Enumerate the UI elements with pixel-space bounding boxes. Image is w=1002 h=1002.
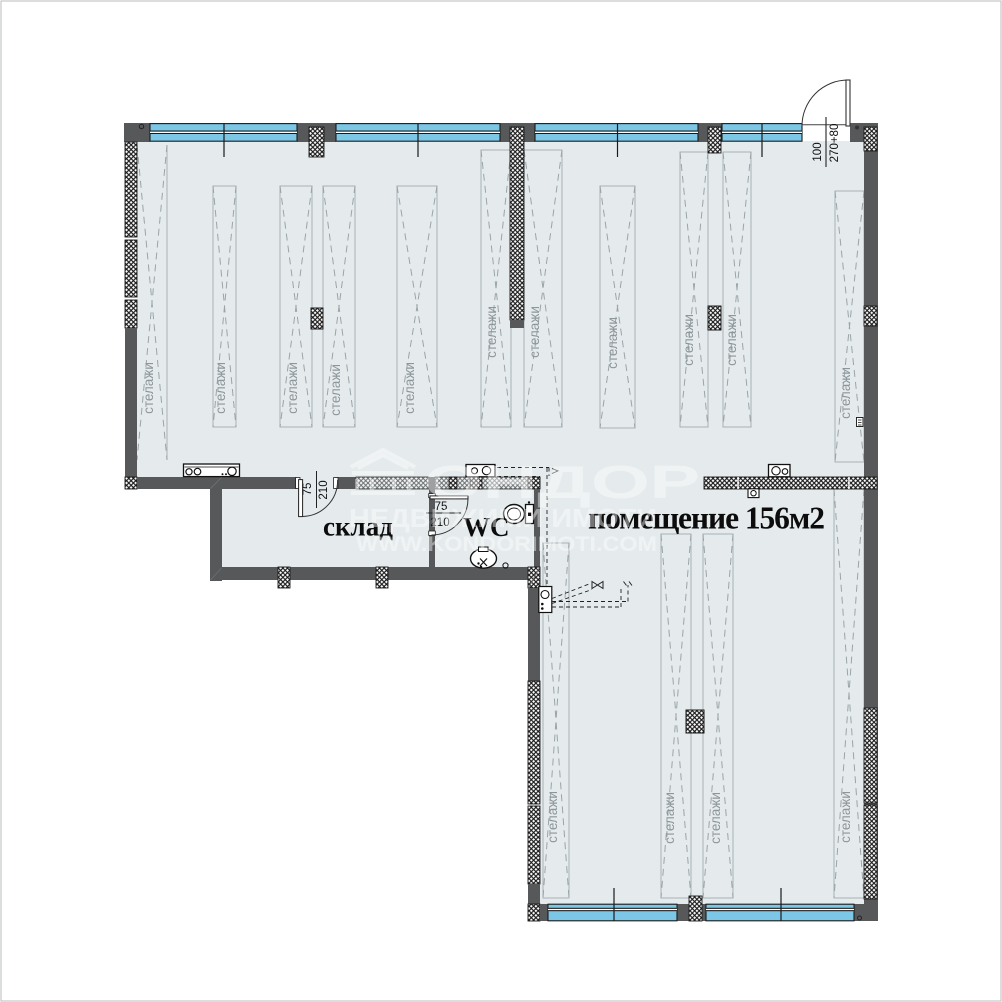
svg-text:стелажи: стелажи (527, 306, 542, 358)
svg-text:стелажи: стелажи (708, 792, 723, 844)
svg-text:стелажи: стелажи (681, 314, 696, 366)
svg-text:270+80: 270+80 (829, 124, 841, 163)
svg-text:НЕДВИЖИМИ ИМОТИ: НЕДВИЖИМИ ИМОТИ (349, 503, 657, 533)
svg-text:75: 75 (302, 483, 314, 496)
svg-text:стелажи: стелажи (605, 317, 620, 369)
svg-text:стелажи: стелажи (545, 791, 560, 843)
svg-text:стелажи: стелажи (328, 364, 343, 416)
svg-text:стелажи: стелажи (285, 362, 300, 414)
svg-text:стелажи: стелажи (402, 362, 417, 414)
svg-text:стелажи: стелажи (141, 362, 156, 414)
svg-text:100: 100 (812, 142, 824, 161)
svg-text:стелажи: стелажи (213, 362, 228, 414)
svg-text:стелажи: стелажи (662, 792, 677, 844)
svg-text:WWW.KONDORIMOTI.COM: WWW.KONDORIMOTI.COM (356, 533, 657, 556)
svg-text:стелажи: стелажи (838, 791, 853, 843)
svg-text:ОНДОР: ОНДОР (424, 456, 700, 508)
svg-text:стелажи: стелажи (724, 314, 739, 366)
svg-text:стелажи: стелажи (838, 367, 853, 419)
svg-text:стелажи: стелажи (484, 306, 499, 358)
svg-text:210: 210 (318, 480, 330, 499)
